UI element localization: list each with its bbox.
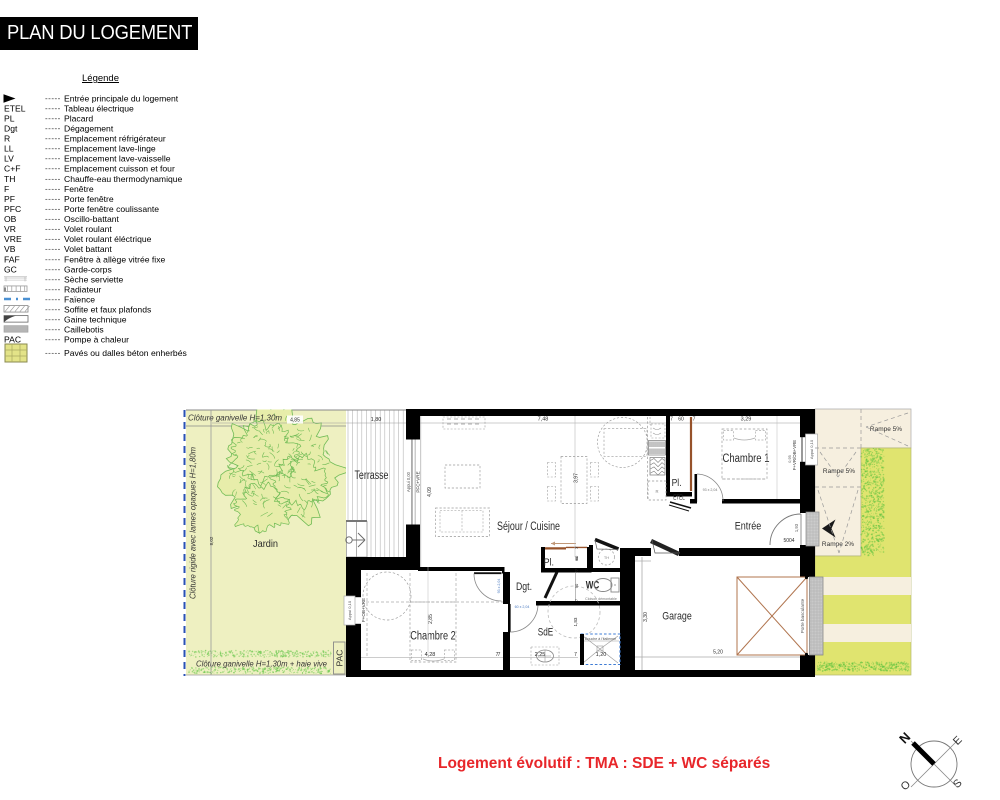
svg-text:PF: PF bbox=[4, 194, 15, 204]
svg-text:Pompe à chaleur: Pompe à chaleur bbox=[64, 335, 129, 345]
svg-text:4,28: 4,28 bbox=[425, 652, 436, 658]
svg-text:LL: LL bbox=[4, 144, 14, 154]
svg-text:4,85: 4,85 bbox=[290, 418, 300, 424]
svg-text:-----: ----- bbox=[45, 305, 61, 314]
svg-text:Emplacement cuisson et four: Emplacement cuisson et four bbox=[64, 164, 175, 174]
svg-text:5,20: 5,20 bbox=[713, 650, 723, 656]
svg-text:Douche à l'italienne: Douche à l'italienne bbox=[585, 637, 616, 641]
svg-text:Appui 0,00: Appui 0,00 bbox=[406, 471, 411, 492]
svg-text:Pavés ou dalles béton enherbés: Pavés ou dalles béton enherbés bbox=[64, 348, 187, 358]
svg-text:-----: ----- bbox=[45, 255, 61, 264]
svg-text:Fenêtre à allège vitrée fixe: Fenêtre à allège vitrée fixe bbox=[64, 254, 165, 264]
svg-text:OB: OB bbox=[4, 214, 17, 224]
svg-text:2,85: 2,85 bbox=[428, 614, 434, 624]
svg-text:-----: ----- bbox=[45, 144, 61, 153]
svg-text:7: 7 bbox=[575, 599, 579, 601]
svg-text:R: R bbox=[655, 489, 658, 494]
svg-text:-----: ----- bbox=[45, 124, 61, 133]
svg-text:-----: ----- bbox=[45, 285, 61, 294]
svg-text:PAC: PAC bbox=[335, 650, 345, 667]
svg-text:4,09: 4,09 bbox=[427, 487, 433, 497]
svg-text:PAC: PAC bbox=[4, 335, 21, 345]
svg-text:Tableau électrique: Tableau électrique bbox=[64, 103, 134, 113]
svg-text:-----: ----- bbox=[45, 154, 61, 163]
svg-text:1,20: 1,20 bbox=[596, 652, 607, 658]
svg-text:Placard: Placard bbox=[64, 113, 93, 123]
svg-text:VB: VB bbox=[4, 244, 16, 254]
svg-text:Appui 0,10: Appui 0,10 bbox=[347, 600, 352, 620]
svg-text:93 x 2,04: 93 x 2,04 bbox=[703, 488, 718, 492]
svg-text:-----: ----- bbox=[45, 164, 61, 173]
svg-text:-----: ----- bbox=[45, 104, 61, 113]
svg-text:Emplacement réfrigérateur: Emplacement réfrigérateur bbox=[64, 134, 166, 144]
svg-text:LV: LV bbox=[4, 154, 14, 164]
svg-text:Rampe 5%: Rampe 5% bbox=[823, 468, 855, 475]
svg-text:Dégagement: Dégagement bbox=[64, 123, 114, 133]
svg-text:Chambre 1: Chambre 1 bbox=[723, 453, 770, 465]
svg-text:O: O bbox=[899, 778, 914, 793]
svg-text:Séjour / Cuisine: Séjour / Cuisine bbox=[497, 521, 560, 533]
svg-text:-----: ----- bbox=[45, 204, 61, 213]
svg-text:7: 7 bbox=[575, 571, 579, 573]
svg-text:PFC+VRE: PFC+VRE bbox=[416, 471, 421, 492]
svg-text:Garage: Garage bbox=[662, 611, 692, 623]
svg-text:VRE: VRE bbox=[4, 234, 22, 244]
svg-text:7: 7 bbox=[574, 652, 577, 658]
svg-text:Fenêtre: Fenêtre bbox=[64, 184, 94, 194]
svg-text:Chambre 2: Chambre 2 bbox=[410, 631, 456, 643]
svg-text:-----: ----- bbox=[45, 114, 61, 123]
svg-text:-----: ----- bbox=[45, 335, 61, 344]
svg-text:Volet roulant éléctrique: Volet roulant éléctrique bbox=[64, 234, 152, 244]
svg-text:2,25: 2,25 bbox=[535, 652, 546, 658]
svg-text:-----: ----- bbox=[45, 194, 61, 203]
svg-text:Dgt.: Dgt. bbox=[516, 581, 532, 593]
svg-text:ETEL: ETEL bbox=[673, 495, 685, 502]
svg-text:Porte basculante: Porte basculante bbox=[800, 598, 805, 633]
svg-text:Appui 0,10: Appui 0,10 bbox=[809, 439, 814, 459]
svg-text:Gaine technique: Gaine technique bbox=[64, 315, 127, 325]
svg-text:Pl.: Pl. bbox=[672, 477, 682, 489]
svg-text:60 x 2,04: 60 x 2,04 bbox=[515, 605, 530, 609]
svg-text:-----: ----- bbox=[45, 295, 61, 304]
svg-text:1,80: 1,80 bbox=[371, 417, 382, 423]
svg-text:Clôture rigide avec lames opaq: Clôture rigide avec lames opaques H=1,80… bbox=[188, 447, 198, 599]
svg-text:0,95: 0,95 bbox=[788, 455, 792, 462]
svg-text:GC: GC bbox=[4, 264, 17, 274]
svg-text:E: E bbox=[951, 734, 965, 748]
svg-text:3,29: 3,29 bbox=[741, 417, 752, 423]
svg-text:Entrée: Entrée bbox=[735, 521, 762, 533]
svg-text:N: N bbox=[896, 729, 913, 746]
svg-text:7: 7 bbox=[693, 417, 696, 423]
svg-text:Porte fenêtre coulissante: Porte fenêtre coulissante bbox=[64, 204, 159, 214]
svg-text:Sèche serviette: Sèche serviette bbox=[64, 274, 123, 284]
svg-text:PFC: PFC bbox=[4, 204, 21, 214]
svg-text:5004: 5004 bbox=[783, 538, 794, 544]
svg-text:PL: PL bbox=[4, 113, 15, 123]
svg-text:93 x 2,04: 93 x 2,04 bbox=[497, 579, 501, 594]
svg-text:-----: ----- bbox=[45, 275, 61, 284]
svg-text:Clôture ganivelle H=1,30m: Clôture ganivelle H=1,30m bbox=[188, 413, 282, 423]
svg-text:1,93: 1,93 bbox=[794, 523, 799, 532]
svg-text:90: 90 bbox=[574, 583, 579, 588]
svg-text:-----: ----- bbox=[45, 184, 61, 193]
svg-text:Radiateur: Radiateur bbox=[64, 284, 101, 294]
svg-text:1,83: 1,83 bbox=[573, 617, 578, 626]
svg-text:TH: TH bbox=[4, 174, 15, 184]
svg-text:-----: ----- bbox=[45, 315, 61, 324]
svg-text:3,30: 3,30 bbox=[643, 612, 649, 622]
svg-text:-----: ----- bbox=[45, 94, 61, 103]
svg-text:-----: ----- bbox=[45, 349, 61, 358]
svg-text:Oscillo-battant: Oscillo-battant bbox=[64, 214, 120, 224]
svg-text:VR: VR bbox=[4, 224, 16, 234]
svg-text:3,97: 3,97 bbox=[574, 473, 580, 483]
svg-text:Caillebotis: Caillebotis bbox=[64, 325, 104, 335]
svg-text:Jardin: Jardin bbox=[253, 538, 278, 550]
svg-text:-----: ----- bbox=[45, 225, 61, 234]
svg-text:F: F bbox=[4, 184, 9, 194]
svg-text:7: 7 bbox=[496, 652, 499, 658]
svg-text:TH: TH bbox=[604, 555, 609, 560]
svg-text:-----: ----- bbox=[45, 245, 61, 254]
svg-text:7: 7 bbox=[575, 547, 579, 549]
svg-text:60: 60 bbox=[678, 417, 684, 423]
svg-text:-----: ----- bbox=[45, 174, 61, 183]
svg-text:Cloison démontable: Cloison démontable bbox=[585, 597, 617, 601]
svg-text:R: R bbox=[4, 134, 10, 144]
svg-text:-----: ----- bbox=[45, 134, 61, 143]
svg-text:Rampe 5%: Rampe 5% bbox=[870, 426, 902, 433]
svg-text:Soffite et faux plafonds: Soffite et faux plafonds bbox=[64, 305, 151, 315]
svg-text:-----: ----- bbox=[45, 215, 61, 224]
svg-text:Entrée principale du logement: Entrée principale du logement bbox=[64, 93, 179, 103]
svg-text:SdE: SdE bbox=[538, 627, 554, 639]
svg-text:7: 7 bbox=[670, 417, 673, 423]
svg-text:Volet battant: Volet battant bbox=[64, 244, 112, 254]
svg-text:F+OB+VRE: F+OB+VRE bbox=[361, 598, 366, 622]
svg-text:Emplacement lave-linge: Emplacement lave-linge bbox=[64, 144, 156, 154]
svg-text:FAF: FAF bbox=[4, 254, 20, 264]
svg-text:Volet roulant: Volet roulant bbox=[64, 224, 112, 234]
svg-text:F+VR/OB+VRE: F+VR/OB+VRE bbox=[792, 440, 797, 471]
svg-text:Emplacement lave-vaisselle: Emplacement lave-vaisselle bbox=[64, 154, 171, 164]
svg-text:S: S bbox=[951, 777, 965, 791]
svg-text:Terrasse: Terrasse bbox=[355, 470, 389, 482]
svg-text:Pl.: Pl. bbox=[544, 557, 554, 569]
svg-text:Porte fenêtre: Porte fenêtre bbox=[64, 194, 114, 204]
svg-text:-----: ----- bbox=[45, 325, 61, 334]
svg-text:Faïence: Faïence bbox=[64, 295, 95, 305]
svg-text:Clôture ganivelle H=1,30m + ha: Clôture ganivelle H=1,30m + haie vive bbox=[196, 659, 327, 669]
svg-text:8,02: 8,02 bbox=[209, 536, 214, 545]
svg-text:7,48: 7,48 bbox=[538, 417, 549, 423]
svg-text:Dgt: Dgt bbox=[4, 123, 18, 133]
svg-text:Rampe 2%: Rampe 2% bbox=[822, 541, 854, 548]
svg-text:Chauffe-eau thermodynamique: Chauffe-eau thermodynamique bbox=[64, 174, 183, 184]
svg-text:ETEL: ETEL bbox=[4, 103, 26, 113]
svg-text:60: 60 bbox=[574, 555, 579, 560]
svg-text:-----: ----- bbox=[45, 265, 61, 274]
svg-text:Garde-corps: Garde-corps bbox=[64, 264, 112, 274]
svg-text:C+F: C+F bbox=[4, 164, 20, 174]
svg-text:-----: ----- bbox=[45, 235, 61, 244]
